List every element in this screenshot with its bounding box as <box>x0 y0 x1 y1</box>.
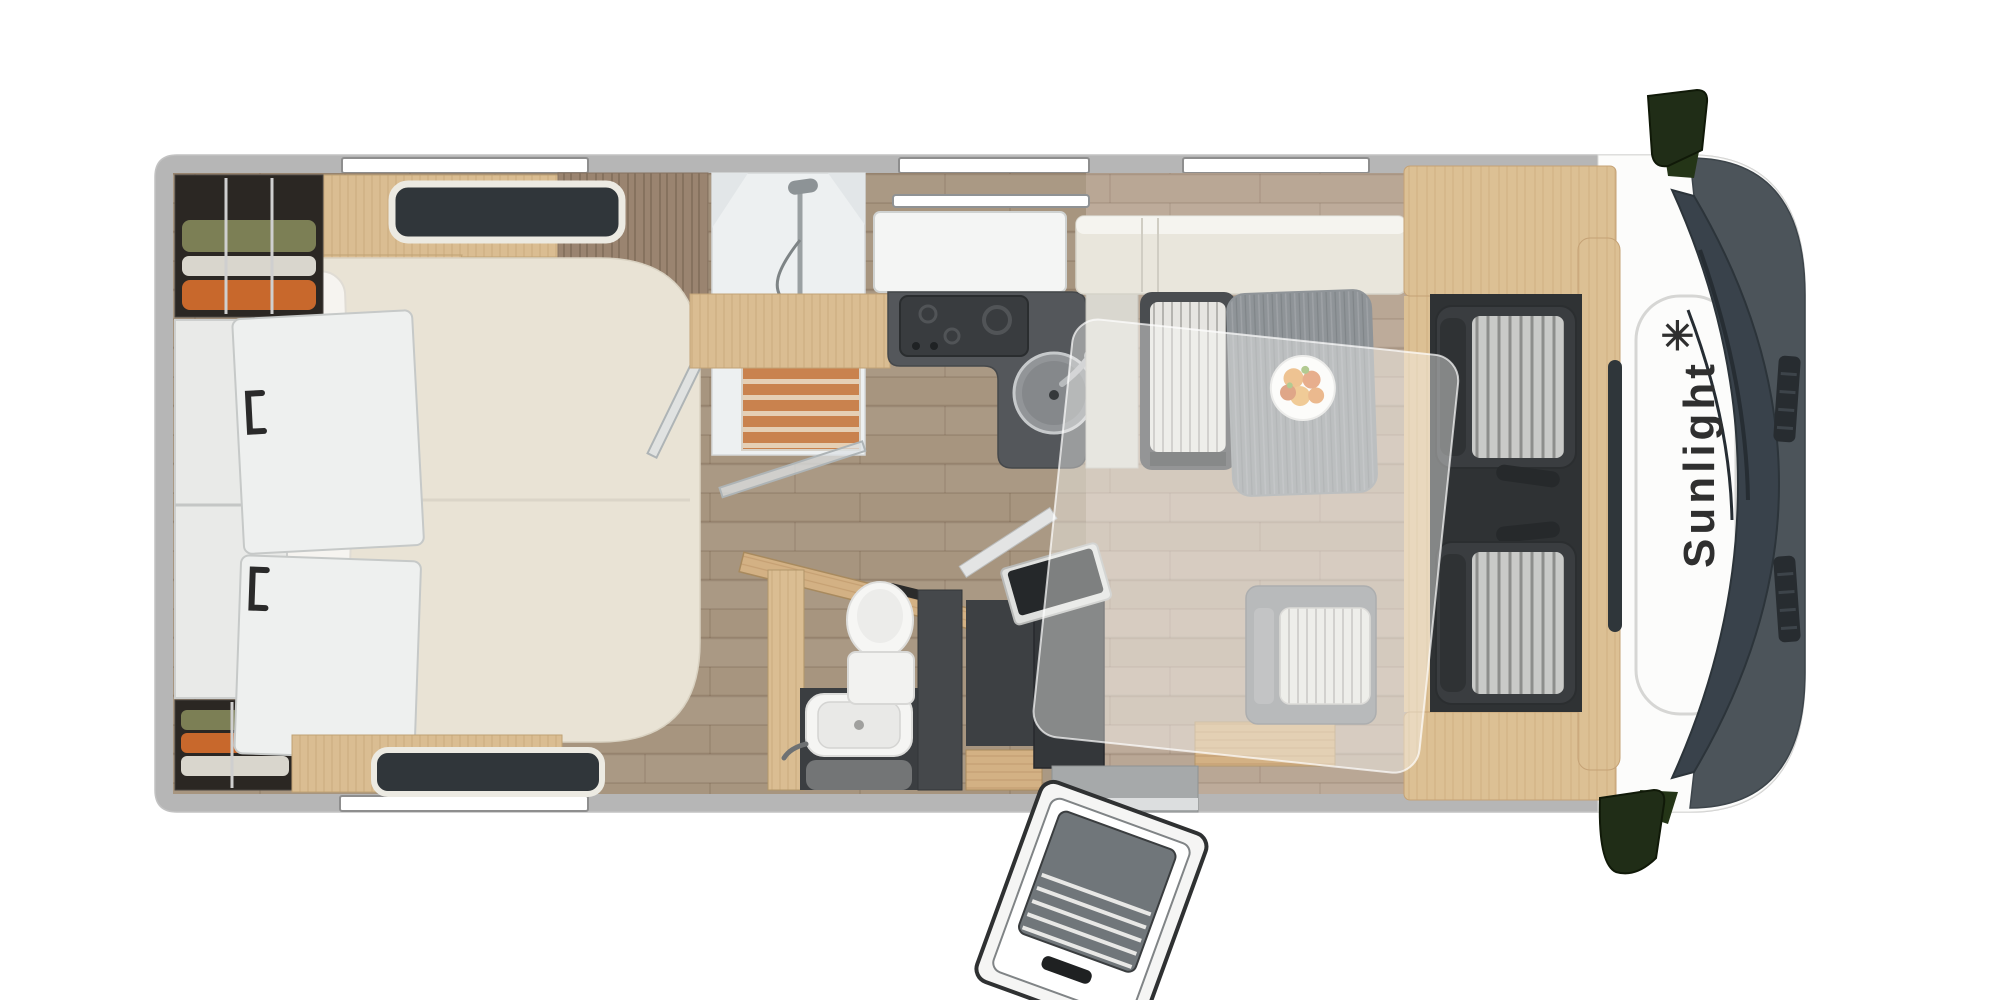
sunlight-logo-star-icon: ✳ <box>1657 314 1701 352</box>
sunlight-logo-text: Sunlight <box>1675 360 1724 568</box>
seat-cushion <box>1472 316 1564 458</box>
sink-drain <box>1049 390 1059 400</box>
skylight-bottom <box>374 750 602 794</box>
drop-down-bed-overlay <box>1031 317 1461 775</box>
toilet <box>847 582 914 704</box>
wardrobe-top <box>175 175 323 317</box>
window-top-kitchen <box>899 158 1089 173</box>
sideboard-top-edge <box>1076 216 1406 234</box>
bathroom-cabinet-tall <box>918 590 962 790</box>
kitchen-overhead-flap <box>874 212 1066 292</box>
passenger-seat <box>1436 542 1576 704</box>
cabinet-door-open-top <box>232 310 424 554</box>
seat-cushion <box>1472 552 1564 694</box>
window-top-bedroom <box>342 158 588 173</box>
basin-drain <box>854 720 864 730</box>
gas-hob <box>900 296 1028 356</box>
motorhome-floorplan: Sunlight ✳ <box>0 0 2000 1000</box>
rear-bedroom <box>175 173 708 794</box>
seat-headrest <box>1440 554 1466 692</box>
basin-reflection <box>806 760 912 790</box>
cabinet-door-open-bottom <box>234 555 421 759</box>
clothes-white <box>181 756 289 776</box>
cab-sunroof-strip <box>1608 360 1622 632</box>
hob-knob <box>930 342 938 350</box>
bathroom-drawer-wood <box>966 750 1042 790</box>
clothes-orange <box>182 280 316 310</box>
hob-knob <box>912 342 920 350</box>
kitchen-wood-counter <box>690 294 890 368</box>
clothes-white <box>182 256 316 276</box>
clothes-green <box>182 220 316 252</box>
window-bottom-bedroom <box>340 796 588 811</box>
toilet-tank <box>848 652 914 704</box>
skylight-top <box>392 184 622 240</box>
window-top-dinette <box>1183 158 1369 173</box>
kitchen-led-light <box>893 195 1089 207</box>
